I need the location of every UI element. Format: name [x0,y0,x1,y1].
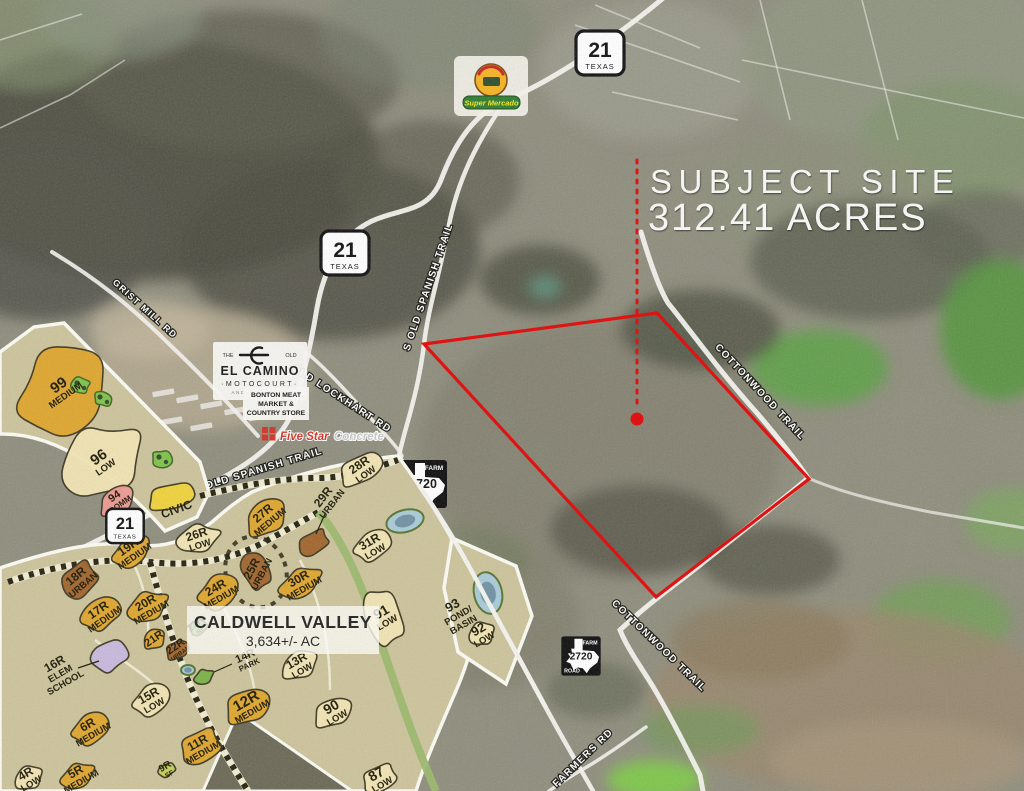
image-grain [0,0,1024,791]
subject-annotation: SUBJECT SITE 312.41 ACRES [648,163,960,239]
subject-acreage: 312.41 ACRES [648,197,928,239]
aerial-map: S OLD SPANISH TRAILS OLD SPANISH TRAILOL… [0,0,1024,791]
map-canvas: S OLD SPANISH TRAILS OLD SPANISH TRAILOL… [0,0,1024,791]
subject-title: SUBJECT SITE [650,163,960,200]
site-marker-dot [631,413,644,426]
